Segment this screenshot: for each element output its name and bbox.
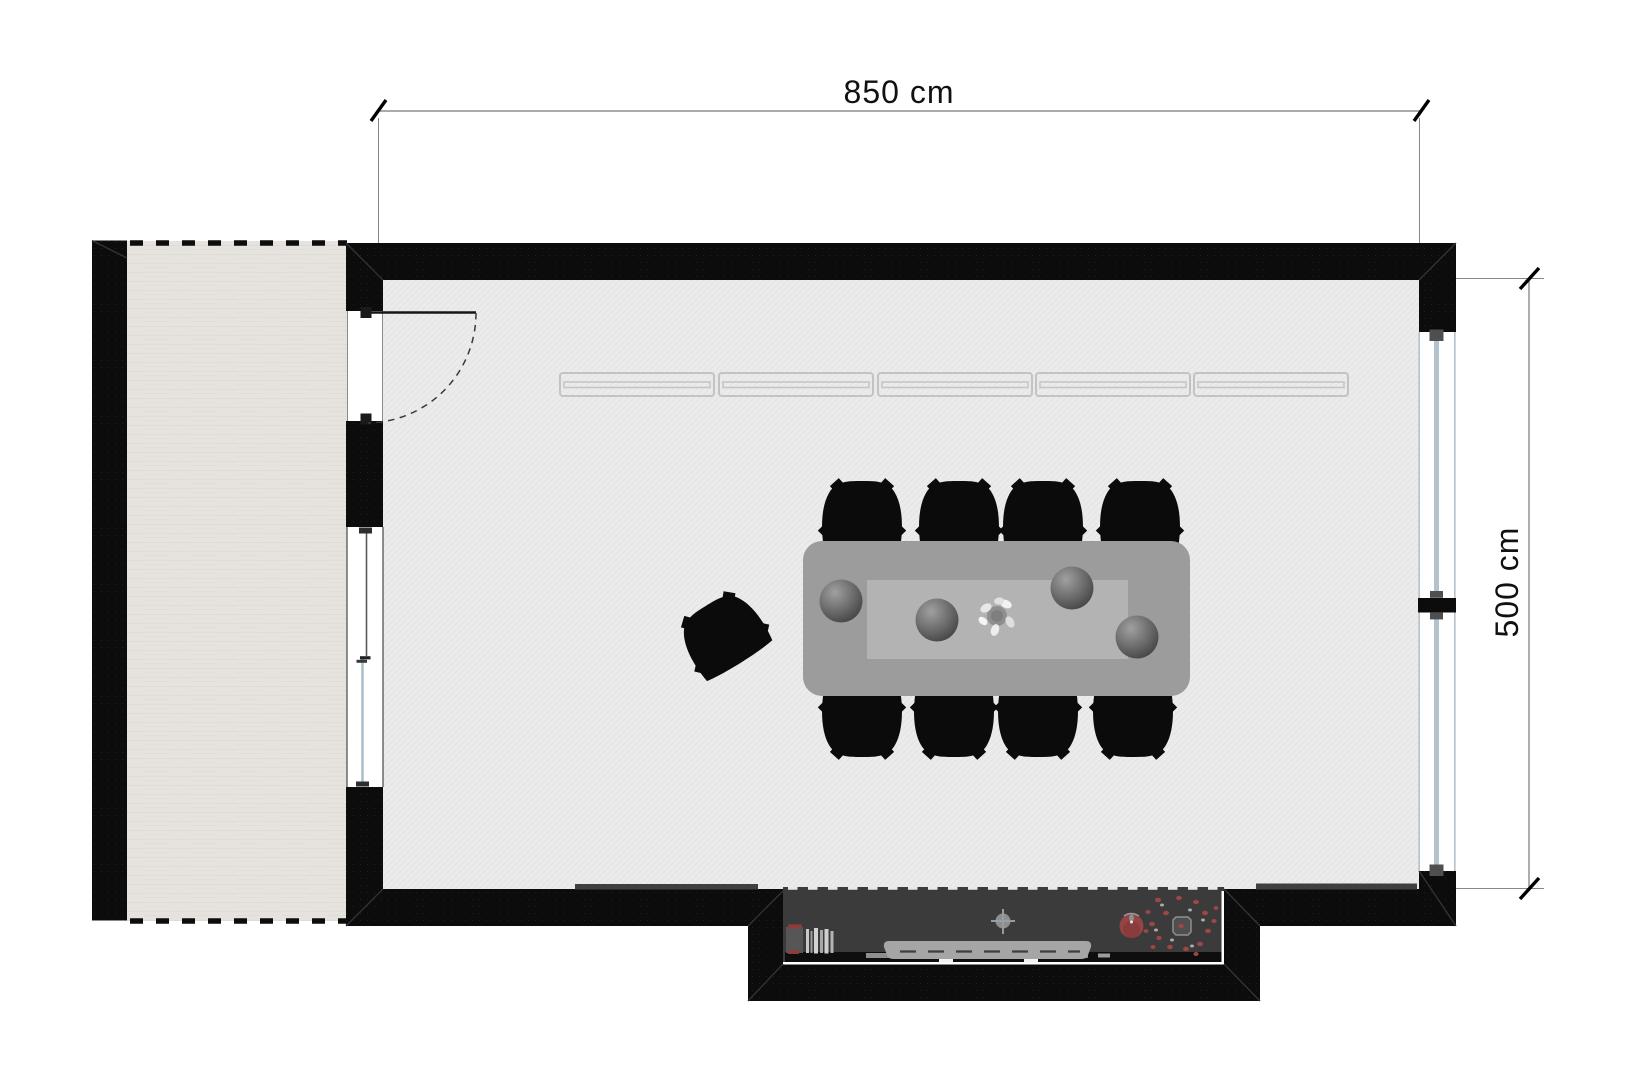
svg-text:500 cm: 500 cm bbox=[1489, 527, 1525, 638]
svg-text:850 cm: 850 cm bbox=[844, 74, 955, 110]
